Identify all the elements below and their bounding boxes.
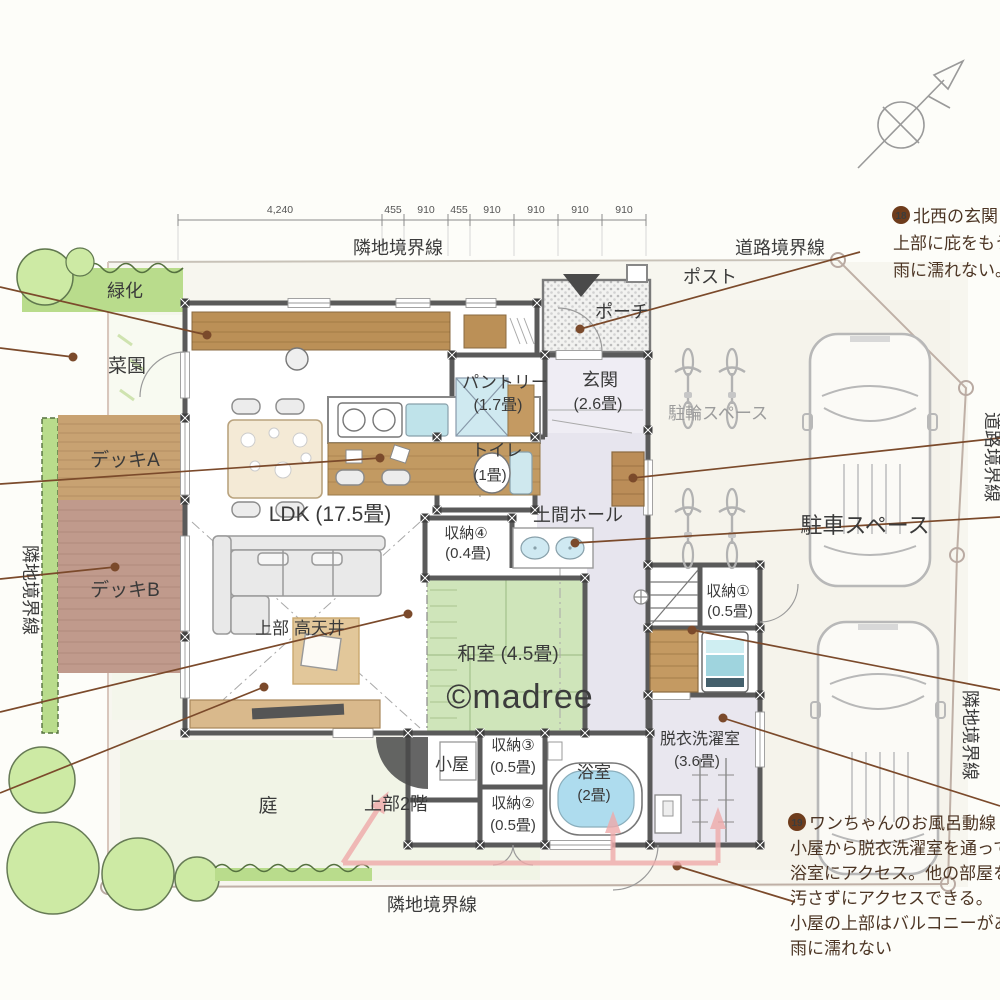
label-deck-b: デッキB bbox=[90, 579, 160, 601]
wall-counter bbox=[192, 312, 450, 350]
annotation-19-line4: 汚さずにアクセスできる。 bbox=[790, 889, 993, 908]
dim-455a: 455 bbox=[384, 204, 402, 216]
room-label-storage3: 収納③ bbox=[491, 737, 534, 754]
room-label-pantry: パントリー bbox=[462, 373, 548, 392]
boundary-label-right-bottom: 隣地境界線 bbox=[960, 690, 980, 780]
room-size-storage4: (0.4畳) bbox=[445, 545, 491, 562]
room-label-genkan: 玄関 bbox=[582, 370, 618, 390]
label-parking-space: 駐車スペース bbox=[800, 513, 929, 538]
kitchen-sink bbox=[406, 404, 448, 436]
stool bbox=[286, 348, 308, 370]
annotation-18-number: 18 bbox=[895, 211, 907, 222]
annotation-19-line2: 小屋から脱衣洗濯室を通って bbox=[790, 839, 1000, 858]
boundary-label-left: 隣地境界線 bbox=[20, 545, 40, 635]
wash-basins bbox=[513, 528, 593, 568]
room-label-storage1: 収納① bbox=[706, 583, 749, 600]
label-post: ポスト bbox=[683, 267, 737, 287]
stove bbox=[338, 403, 402, 437]
tree bbox=[7, 822, 99, 914]
room-label-toilet: トイレ bbox=[472, 441, 523, 460]
room-label-koya: 小屋 bbox=[435, 755, 469, 774]
tree bbox=[175, 857, 219, 901]
dim-910e: 910 bbox=[615, 204, 633, 216]
boundary-label-road-right: 道路境界線 bbox=[982, 412, 1000, 502]
shoe-cabinet bbox=[612, 452, 644, 506]
room-size-storage3: (0.5畳) bbox=[490, 759, 536, 776]
room-size-pantry: (1.7畳) bbox=[474, 397, 523, 414]
car-icon bbox=[803, 334, 937, 586]
room-size-bath: (2畳) bbox=[577, 787, 610, 804]
dim-910a: 910 bbox=[417, 204, 435, 216]
room-label-bath: 浴室 bbox=[577, 763, 611, 782]
floor-plan-page: 4,240 455 910 455 910 910 910 910 bbox=[0, 0, 1000, 1000]
label-yard: 庭 bbox=[258, 795, 277, 817]
room-label-storage4: 収納④ bbox=[444, 525, 487, 542]
room-label-ldk: LDK (17.5畳) bbox=[269, 503, 392, 526]
dim-910d: 910 bbox=[571, 204, 589, 216]
dim-455b: 455 bbox=[450, 204, 468, 216]
annotation-18: 18 北西の玄関 上部に庇をもうけ 雨に濡れない。 bbox=[892, 206, 1000, 280]
label-bicycle-space: 駐輪スペース bbox=[668, 404, 768, 423]
dim-910c: 910 bbox=[527, 204, 545, 216]
annotation-18-line2: 上部に庇をもうけ bbox=[893, 234, 1000, 253]
dim-910b: 910 bbox=[483, 204, 501, 216]
room-size-toilet: (1畳) bbox=[473, 467, 506, 484]
room-label-laundry: 脱衣洗濯室 bbox=[660, 730, 740, 748]
annotation-18-line3: 雨に濡れない。 bbox=[893, 261, 1000, 280]
annotation-19-line1: ワンちゃんのお風呂動線 bbox=[809, 814, 996, 833]
car-icon bbox=[811, 622, 945, 874]
room-size-storage1: (0.5畳) bbox=[707, 603, 753, 620]
annotation-18-line1: 北西の玄関 bbox=[913, 207, 998, 226]
boundary-label-road-top: 道路境界線 bbox=[735, 238, 825, 258]
label-porch: ポーチ bbox=[595, 302, 649, 322]
boundary-label-top: 隣地境界線 bbox=[353, 238, 443, 258]
boundary-label-bottom: 隣地境界線 bbox=[387, 895, 477, 915]
room-label-high-ceiling: 上部 高天井 bbox=[255, 619, 345, 638]
low-table bbox=[301, 634, 341, 671]
tree bbox=[102, 838, 174, 910]
annotation-19-line5: 小屋の上部はバルコニーがあり bbox=[790, 914, 1000, 933]
label-vegetable-garden: 菜園 bbox=[108, 355, 146, 377]
annotation-19-line6: 雨に濡れない bbox=[790, 939, 892, 958]
room-label-storage2: 収納② bbox=[491, 795, 534, 812]
label-green: 緑化 bbox=[107, 281, 143, 301]
room-size-laundry: (3.6畳) bbox=[674, 753, 720, 770]
room-size-genkan: (2.6畳) bbox=[574, 396, 623, 413]
watermark: ©madree bbox=[446, 678, 593, 716]
hedge-low bbox=[215, 868, 372, 881]
annotation-19-line3: 浴室にアクセス。他の部屋を bbox=[790, 864, 1000, 883]
floor-plan-svg: 4,240 455 910 455 910 910 910 910 bbox=[0, 0, 1000, 1000]
room-label-doma-hall: 土間ホール bbox=[533, 505, 623, 525]
room-label-upper-2f: 上部2階 bbox=[364, 794, 428, 814]
label-deck-a: デッキA bbox=[90, 449, 160, 471]
room-label-washitsu: 和室 (4.5畳) bbox=[457, 643, 558, 665]
post-box bbox=[627, 265, 647, 282]
shelf bbox=[650, 630, 698, 692]
dim-4240: 4,240 bbox=[267, 204, 293, 216]
tree bbox=[9, 747, 75, 813]
annotation-19-number: 19 bbox=[791, 818, 803, 829]
hedge-strip bbox=[42, 418, 58, 733]
room-size-storage2: (0.5畳) bbox=[490, 817, 536, 834]
